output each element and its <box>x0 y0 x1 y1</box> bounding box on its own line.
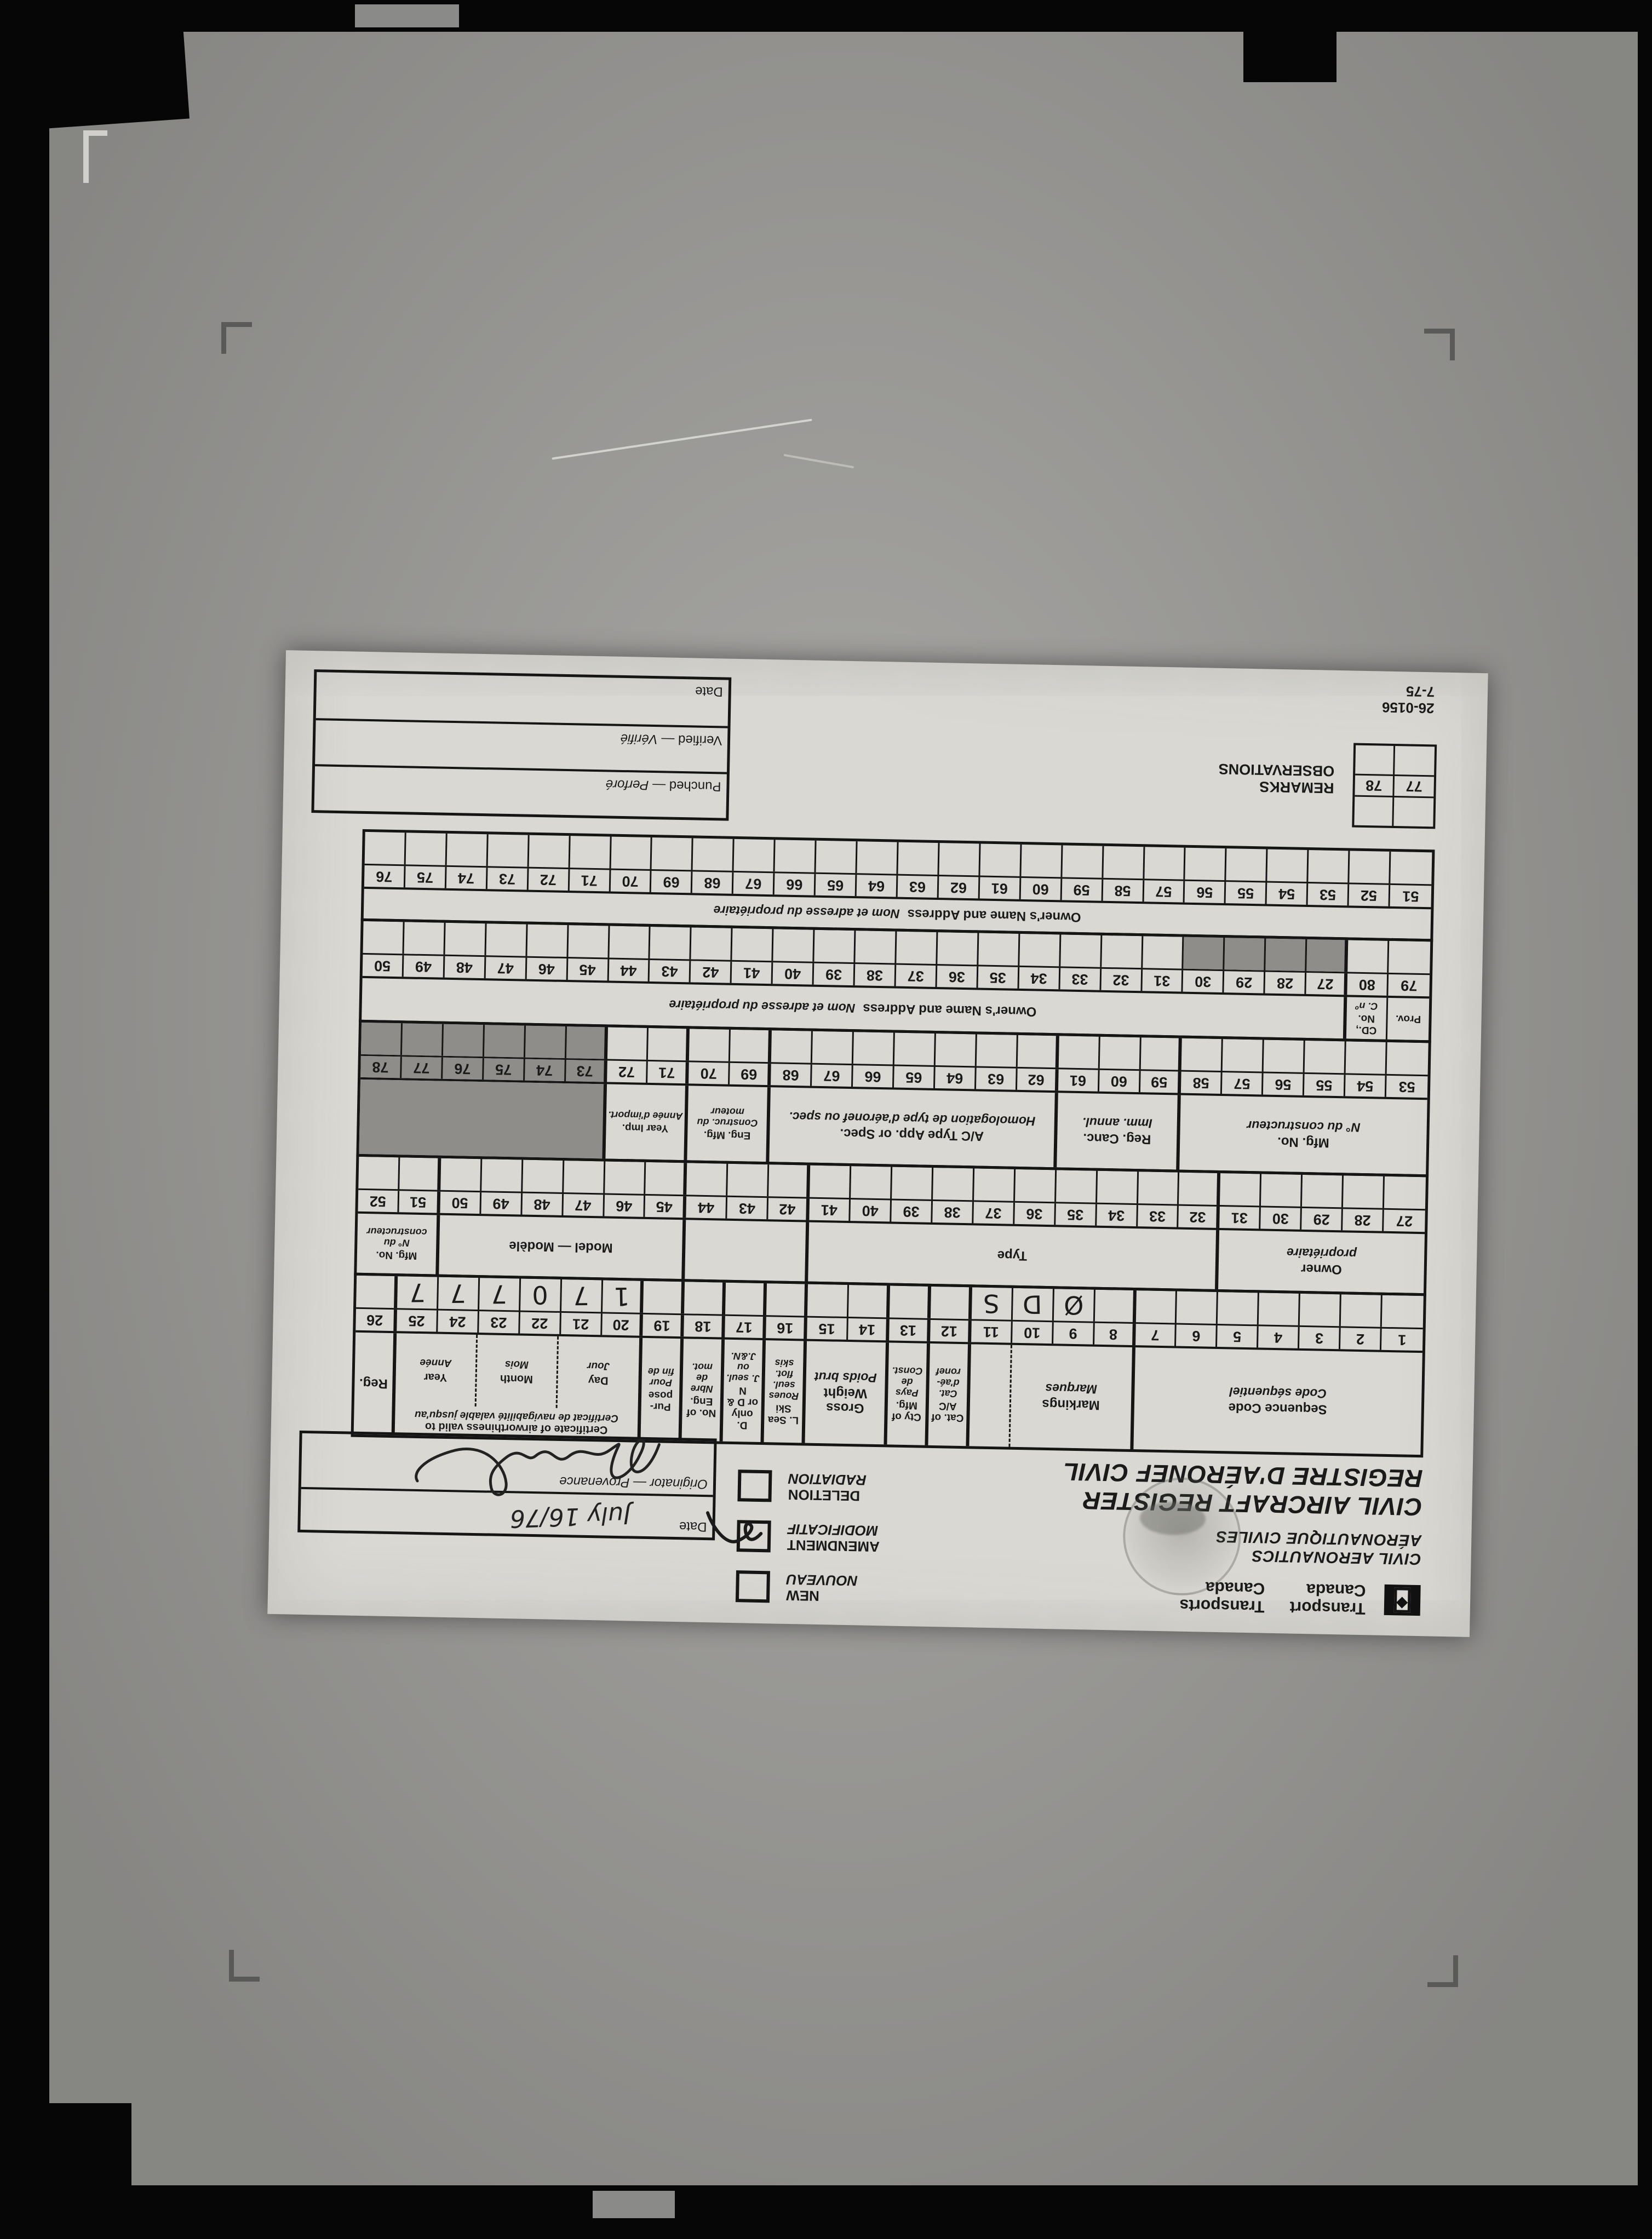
col-number: 21 <box>572 1315 589 1333</box>
col-number: 49 <box>415 958 432 975</box>
data-cell-col-74 <box>525 1026 567 1058</box>
col-number-cell: 25 <box>397 1310 438 1331</box>
col-number: 18 <box>695 1318 712 1335</box>
col-number: 46 <box>616 1197 633 1215</box>
col-number-cell: 42 <box>691 961 732 983</box>
col-number: 58 <box>1192 1074 1209 1092</box>
col-number-cell: 56 <box>1263 1073 1305 1095</box>
data-cell-col-19 <box>643 1281 685 1313</box>
col-number: 11 <box>983 1323 999 1341</box>
remarks-grid-number-row: 77 78 <box>1355 774 1434 799</box>
col-number: 22 <box>531 1314 548 1332</box>
frame-left <box>0 0 49 2239</box>
col-number: 12 <box>941 1322 958 1340</box>
col-number-cell: 53 <box>1308 883 1350 905</box>
col-number: 69 <box>663 873 680 891</box>
label-fr: Pays de Const. <box>890 1365 925 1399</box>
data-cell-col-23: 7 <box>479 1278 521 1310</box>
frame-bottom <box>0 2186 1652 2239</box>
col-number-cell: 36 <box>1014 1203 1056 1225</box>
col-number-cell: 60 <box>1099 1070 1141 1092</box>
handwritten-entry: 0 <box>532 1280 548 1310</box>
label-en: Reg. Canc. <box>1083 1131 1151 1147</box>
data-cell-col-34 <box>1097 1171 1139 1203</box>
checkbox-label-fr: NOUVEAU <box>786 1571 858 1589</box>
col-number-cell: 34 <box>1019 967 1060 989</box>
col-number-cell: 76 <box>364 865 406 887</box>
data-cell-col-66 <box>775 840 817 872</box>
col-number: 14 <box>859 1321 876 1338</box>
col-number: 48 <box>534 1196 550 1213</box>
registration-mark-icon <box>1427 1955 1458 1987</box>
col-number-cell: 31 <box>1142 969 1184 991</box>
data-cell-col-56 <box>1264 1040 1305 1072</box>
col-number: 54 <box>1357 1077 1374 1095</box>
data-cell-col-63 <box>977 1034 1018 1066</box>
data-cell-col-20: 1 <box>603 1280 644 1312</box>
amendment-checkbox <box>737 1520 771 1552</box>
data-cell-col-32 <box>1102 935 1143 968</box>
col-number: 59 <box>1073 881 1090 899</box>
data-cell-col-42 <box>691 927 733 960</box>
col-number: 76 <box>376 868 393 885</box>
col-number-cell: 61 <box>979 877 1021 899</box>
data-cell-col-11: S <box>972 1287 1013 1319</box>
checkbox-label-fr: MODIFICATIF <box>787 1521 878 1539</box>
col-number-cell: 70 <box>689 1062 730 1084</box>
col-number: 63 <box>909 878 926 895</box>
col-number-cell: 74 <box>525 1059 566 1081</box>
col-number-cell: 4 <box>1258 1326 1300 1348</box>
col-number: 77 <box>413 1059 430 1077</box>
process-row-date: Date <box>316 671 729 726</box>
col-number: 36 <box>1026 1205 1043 1222</box>
col-number-cell: 49 <box>481 1192 523 1214</box>
col-number: 50 <box>374 957 391 974</box>
col-number: 41 <box>743 964 760 981</box>
data-cell-col-36 <box>1015 1169 1057 1202</box>
col-number-cell: 13 <box>889 1319 931 1341</box>
sub-label-fr: Mois <box>504 1357 529 1371</box>
data-cell-col-75 <box>484 1025 526 1057</box>
data-cell-col-72 <box>607 1027 649 1059</box>
label-en: Markings <box>1042 1397 1100 1413</box>
col-number: 37 <box>908 967 925 985</box>
col-number: 17 <box>736 1318 753 1336</box>
data-cell-col-49 <box>481 1159 523 1191</box>
data-cell-col-47 <box>486 923 527 956</box>
col-number-cell: 38 <box>855 964 897 986</box>
data-cell-col-37 <box>974 1168 1016 1201</box>
registration-mark-icon <box>1424 329 1455 360</box>
col-number-cell: 71 <box>648 1061 690 1083</box>
col-number: 33 <box>1149 1208 1166 1225</box>
col-number: 68 <box>704 874 721 892</box>
col-number-cell: 48 <box>522 1193 564 1215</box>
band-3: Mfg. No.N° du constructeurReg. Canc.Imm.… <box>356 1020 1431 1178</box>
col-number-cell: 74 <box>446 867 488 889</box>
label-cell: D. only or D & NJ. seul. ou J.&N. <box>723 1340 766 1442</box>
col-number: 47 <box>575 1196 592 1214</box>
col-number-cell: 80 <box>1347 973 1389 995</box>
label-en: Model — Modèle <box>509 1239 613 1256</box>
data-cell-col-55 <box>1226 848 1268 881</box>
label-fr: C. nº <box>1356 1001 1378 1012</box>
col-number: 56 <box>1196 883 1213 901</box>
data-cell-col-49 <box>404 922 445 954</box>
col-number-cell: 22 <box>520 1312 561 1334</box>
col-number: 58 <box>1114 882 1131 899</box>
data-cell-col-71 <box>570 836 611 868</box>
col-number: 16 <box>777 1319 794 1337</box>
data-cell-col-78 <box>361 1023 403 1055</box>
col-number-cell: 41 <box>809 1199 851 1221</box>
col-number-cell: 21 <box>561 1313 603 1335</box>
data-cell-col-38 <box>855 931 897 963</box>
col-number: 32 <box>1112 971 1129 989</box>
col-number: 70 <box>622 872 639 890</box>
data-cell-col-7 <box>1135 1290 1177 1323</box>
col-number-cell: 54 <box>1345 1075 1387 1096</box>
data-cell-col-29 <box>1302 1175 1344 1207</box>
col-number: 45 <box>579 961 596 978</box>
col-number-cell: 27 <box>1384 1210 1425 1232</box>
col-number-cell: 53 <box>1386 1076 1428 1098</box>
data-cell-col-57 <box>1223 1039 1264 1071</box>
col-number-cell: 62 <box>1017 1069 1059 1090</box>
col-number-cell: 33 <box>1138 1205 1179 1227</box>
col-number: 73 <box>576 1062 593 1080</box>
col-number-cell: 73 <box>566 1060 607 1082</box>
col-number: 27 <box>1317 975 1334 992</box>
col-number: 34 <box>1108 1207 1125 1224</box>
col-number-cell: 16 <box>766 1317 807 1339</box>
col-number-cell: 7 <box>1135 1324 1177 1346</box>
logo-wordmark-en: TransportCanada <box>1289 1580 1366 1618</box>
col-number: 71 <box>658 1064 675 1081</box>
col-number-cell: 23 <box>479 1311 520 1333</box>
col-number: 67 <box>745 875 762 892</box>
frame-notch-bottom <box>593 2191 675 2218</box>
col-number: 76 <box>454 1060 471 1077</box>
col-number-cell: 43 <box>650 960 691 982</box>
col-number: 72 <box>540 871 557 888</box>
col-number-cell: 14 <box>848 1318 890 1340</box>
label-cell: No. of Eng.Nbre de mot. <box>682 1339 725 1441</box>
col-number: 28 <box>1354 1212 1371 1229</box>
col-number-cell: 71 <box>569 869 611 891</box>
remarks-grid-top-row <box>1354 797 1433 827</box>
form-sheet: TransportCanada TransportsCanada CIVIL A… <box>267 650 1488 1637</box>
col-number: 4 <box>1274 1329 1283 1346</box>
band-2: OwnerpropriétaireTypeModel — ModèleMfg. … <box>354 1154 1429 1296</box>
col-number-cell: 72 <box>607 1060 649 1082</box>
registration-mark-icon <box>221 322 252 354</box>
data-cell-col-48 <box>445 923 486 955</box>
form-number: 26-0156 7-75 <box>1382 683 1435 717</box>
checkbox-row-deletion: DELETIONRADIATION <box>737 1467 1023 1509</box>
col-number: 47 <box>497 960 514 977</box>
col-number-cell: 57 <box>1144 880 1185 902</box>
col-number: 75 <box>495 1061 512 1078</box>
col-number-cell: 79 <box>1388 974 1430 996</box>
label-fr: Année d'import. <box>608 1110 683 1122</box>
col-number: 28 <box>1277 974 1294 992</box>
col-number-cell: 51 <box>1390 885 1432 907</box>
col-number: 75 <box>417 869 434 886</box>
col-number-cell: 36 <box>937 966 978 988</box>
col-number: 19 <box>653 1317 670 1334</box>
label-fr: Code séquentiel <box>1229 1385 1327 1401</box>
data-cell-col-15 <box>807 1284 849 1317</box>
col-number: 42 <box>779 1201 796 1218</box>
remarks-grid-data-row <box>1355 745 1435 776</box>
col-number: 64 <box>947 1069 963 1087</box>
data-cell-col-65 <box>894 1033 936 1065</box>
data-cell-col-24: 7 <box>438 1277 480 1310</box>
col-number-cell: 34 <box>1097 1204 1138 1226</box>
col-number: 30 <box>1272 1210 1289 1227</box>
data-cell-col-9: Ø <box>1054 1289 1095 1321</box>
col-number-cell: 44 <box>609 960 650 981</box>
checkbox-label-en: AMENDMENT <box>787 1537 880 1554</box>
col-number: 26 <box>366 1311 383 1329</box>
col-number-cell: 52 <box>358 1190 399 1212</box>
data-cell-col-31 <box>1143 936 1184 968</box>
col-number: 55 <box>1237 885 1254 902</box>
label-fr: Cat. d'aé- ronef <box>931 1366 966 1399</box>
col-number-cell: 76 <box>443 1058 484 1080</box>
col-number-cell: 66 <box>853 1065 894 1087</box>
data-cell-col-57 <box>1144 847 1186 879</box>
col-number-cell: 67 <box>812 1065 853 1087</box>
col-number-cell: 35 <box>978 966 1019 988</box>
data-cell-col-39 <box>814 930 856 962</box>
bottom-zone: 77 78 REMARKS OBSERVATIONS 26-0156 7-75 … <box>311 632 1438 834</box>
col-number-cell: 27 <box>1306 973 1348 995</box>
data-cell-col-34 <box>1019 934 1061 966</box>
sub-label-en: Month <box>500 1371 533 1386</box>
col-number-cell: 29 <box>1301 1208 1343 1230</box>
label-cell: Sequence CodeCode séquentiel <box>1133 1347 1422 1455</box>
col-number: 65 <box>827 876 844 894</box>
col-number-cell: 38 <box>932 1201 974 1223</box>
col-number: 29 <box>1313 1210 1330 1228</box>
label-fr: J. seul. ou J.&N. <box>726 1351 761 1384</box>
label-fr: Imm. annul. <box>1082 1116 1152 1131</box>
label-cell: Mfg. No.N° du constructeur <box>357 1214 440 1274</box>
col-number: 41 <box>821 1201 838 1219</box>
label-en: Owner's Name and Address <box>863 1001 1036 1019</box>
col-number: 20 <box>612 1316 629 1334</box>
data-cell-col-41 <box>810 1166 851 1198</box>
col-number: 64 <box>868 877 885 895</box>
handwritten-entry: 7 <box>450 1278 466 1308</box>
data-cell-col-43 <box>650 927 692 959</box>
col-number: 74 <box>536 1061 553 1079</box>
data-cell-col-66 <box>853 1032 895 1064</box>
col-number-cell: 32 <box>1179 1206 1220 1228</box>
data-cell-col-52 <box>358 1157 400 1189</box>
data-cell-col-69 <box>652 837 693 870</box>
col-number-cell: 11 <box>971 1321 1013 1342</box>
brand-block: TransportCanada TransportsCanada CIVIL A… <box>1037 1450 1424 1622</box>
data-cell-col-53 <box>1387 1042 1429 1075</box>
col-number: 54 <box>1278 885 1295 903</box>
col-number-cell: 39 <box>814 963 856 985</box>
col-number-cell: 1 <box>1381 1329 1423 1351</box>
col-number-cell: 30 <box>1183 971 1225 992</box>
col-number-cell: 49 <box>404 955 445 977</box>
label-fr: Marques <box>1045 1381 1097 1397</box>
data-cell-col-46 <box>527 925 569 957</box>
label-en: Sequence Code <box>1228 1400 1327 1417</box>
label-fr: Nbre de mot. <box>685 1361 720 1394</box>
canada-flag-icon <box>1384 1584 1421 1616</box>
col-number-cell: 5 <box>1217 1325 1259 1347</box>
data-cell-col-71 <box>648 1028 690 1060</box>
label-cell: A/C Type App. or Spec.Homologation de ty… <box>770 1087 1058 1167</box>
data-cell-col-51 <box>1390 852 1432 884</box>
label-cell: Year Imp.Année d'import. <box>605 1084 689 1160</box>
data-cell-col-13 <box>890 1285 931 1318</box>
label-cell <box>969 1344 1012 1446</box>
col-number: 66 <box>864 1068 881 1086</box>
data-cell-col-76 <box>443 1024 485 1057</box>
col-number: 37 <box>985 1204 1002 1222</box>
date-originator-box: Date July 16/76 Originator — Provenance <box>297 1431 716 1541</box>
col-number-cell: 41 <box>732 962 773 984</box>
col-number: 55 <box>1316 1076 1333 1094</box>
label-cell <box>359 1080 606 1159</box>
col-number: 72 <box>618 1063 635 1081</box>
top-tab-blot <box>1243 0 1336 82</box>
col-number-cell: 15 <box>807 1318 848 1340</box>
data-cell-col-64 <box>936 1034 977 1066</box>
handwritten-entry: 7 <box>491 1279 507 1309</box>
corner-blot-top-left <box>0 0 190 131</box>
data-cell-col-72 <box>529 835 570 868</box>
label-cell: Mfg. No.N° du constructeur <box>1180 1095 1427 1175</box>
col-number-cell: 60 <box>1020 878 1062 900</box>
label-cell: Cat. of A/CCat. d'aé- ronef <box>928 1344 971 1446</box>
col-number: 73 <box>499 870 516 888</box>
data-cell-col-35 <box>1056 1170 1098 1202</box>
processing-box: Punched — PerforéVerified — VérifiéDate <box>311 669 731 821</box>
label-en: L. Sea Ski <box>766 1402 801 1426</box>
col-number: 80 <box>1359 976 1376 994</box>
col-number-cell: 59 <box>1140 1071 1181 1093</box>
label-en: Prov. <box>1396 1013 1421 1025</box>
col-number: 48 <box>456 958 473 976</box>
label-en: Eng. Mfg. <box>704 1129 751 1141</box>
label-cell: Prov. <box>1387 998 1429 1040</box>
col-number: 31 <box>1231 1209 1248 1226</box>
col-number: 10 <box>1024 1324 1041 1341</box>
col-number: 1 <box>1398 1331 1407 1348</box>
col-number: 43 <box>661 962 678 980</box>
data-cell-col-36 <box>937 932 979 965</box>
label-en: Year Imp. <box>622 1122 668 1135</box>
col-number-cell: 58 <box>1103 880 1144 902</box>
data-cell-col-42 <box>768 1164 810 1197</box>
col-number-cell: 68 <box>692 871 734 893</box>
data-cell-col-50 <box>363 921 405 954</box>
col-number-cell: 72 <box>528 869 570 891</box>
label-en: Type <box>997 1248 1028 1264</box>
data-cell-col-1 <box>1382 1295 1424 1328</box>
data-cell-col-68 <box>771 1030 813 1063</box>
scanned-page: TransportCanada TransportsCanada CIVIL A… <box>0 0 1652 2239</box>
data-cell-col-59 <box>1062 845 1104 877</box>
data-cell-col-58 <box>1181 1038 1223 1071</box>
col-number: 65 <box>905 1069 922 1086</box>
col-number: 63 <box>988 1070 1005 1088</box>
col-number-cell: 75 <box>405 866 447 888</box>
data-cell-col-31 <box>1220 1173 1261 1205</box>
sub-label-en: Year <box>424 1369 448 1385</box>
col-number-cell: 62 <box>939 876 980 898</box>
data-cell-col-8 <box>1094 1290 1136 1322</box>
label-en: Mfg. No. <box>1277 1135 1329 1151</box>
data-cell-col-58 <box>1103 846 1145 879</box>
col-number-cell: 56 <box>1185 881 1226 903</box>
col-number: 53 <box>1398 1078 1415 1095</box>
col-number: 56 <box>1275 1076 1292 1093</box>
remarks-label: REMARKS OBSERVATIONS <box>1218 760 1335 796</box>
col-number: 49 <box>492 1195 509 1213</box>
col-number: 45 <box>656 1198 673 1215</box>
col-number: 33 <box>1071 971 1088 988</box>
col-number-cell: 43 <box>727 1197 769 1219</box>
col-number-cell: 58 <box>1181 1072 1223 1094</box>
col-number: 77 <box>1394 774 1434 798</box>
data-cell-col-14 <box>848 1285 890 1317</box>
data-cell-col-21: 7 <box>561 1279 603 1312</box>
col-number: 59 <box>1151 1073 1168 1091</box>
label-cell <box>685 1220 810 1281</box>
data-cell-col-53 <box>1309 850 1350 882</box>
data-cell-col-30 <box>1261 1174 1303 1206</box>
data-cell-col-68 <box>693 838 735 870</box>
col-number-cell: 31 <box>1220 1207 1261 1228</box>
remarks-columns-grid: 77 78 <box>1352 743 1437 829</box>
process-row-verified: Verified — Vérifié <box>315 718 727 772</box>
data-cell-col-61 <box>1058 1036 1100 1068</box>
col-number-cell: 8 <box>1094 1323 1136 1345</box>
data-cell-col-45 <box>646 1162 687 1195</box>
col-number-cell: 18 <box>684 1315 726 1337</box>
process-row-punched: Punched — Perforé <box>314 764 726 818</box>
handwritten-entry: Ø <box>1064 1290 1084 1321</box>
col-number: 53 <box>1320 886 1336 903</box>
data-cell-col-65 <box>816 841 858 873</box>
col-number: 38 <box>867 967 884 984</box>
col-number-cell: 2 <box>1340 1328 1382 1350</box>
data-cell-col-28 <box>1266 939 1307 971</box>
data-cell-col-6 <box>1177 1291 1218 1324</box>
col-number-cell: 12 <box>930 1320 972 1342</box>
col-number-cell: 44 <box>686 1196 728 1218</box>
label-en: Cty of Mfg. <box>889 1399 924 1422</box>
col-number: 27 <box>1396 1212 1413 1230</box>
col-number-cell: 29 <box>1224 971 1266 993</box>
label-cell: Reg. Canc.Imm. annul. <box>1057 1093 1181 1169</box>
frame-top <box>0 0 1652 32</box>
col-number-cell: 52 <box>1349 884 1391 906</box>
label-en: A/C Type App. or Spec. <box>840 1126 984 1144</box>
data-cell-col-67 <box>812 1031 854 1064</box>
